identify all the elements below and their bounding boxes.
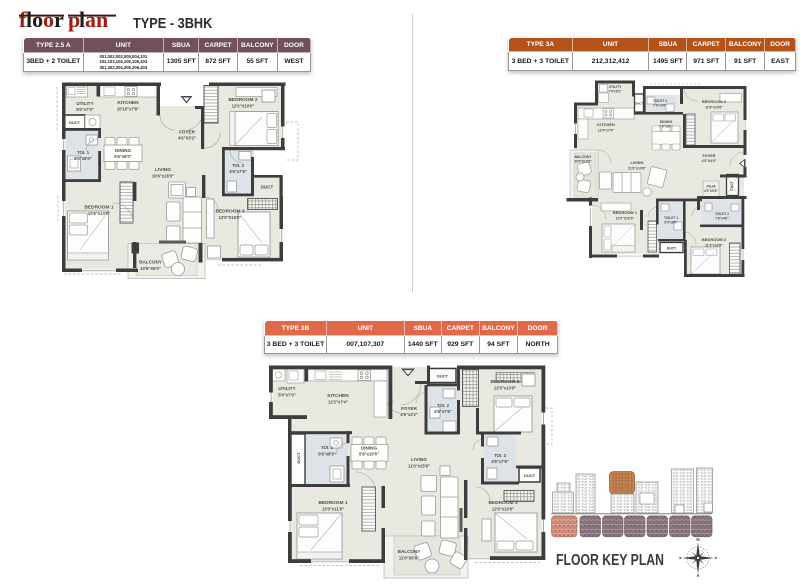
svg-text:UTILITY: UTILITY [278,386,295,391]
svg-text:12'2"x7'4": 12'2"x7'4" [328,400,348,405]
svg-text:DINING: DINING [361,446,378,451]
svg-text:DUCT: DUCT [667,247,677,251]
svg-text:11'6"x10'6": 11'6"x10'6" [705,106,723,110]
svg-text:4'6"X3'2": 4'6"X3'2" [178,136,196,141]
svg-text:12'0"X10'0": 12'0"X10'0" [219,215,242,220]
svg-text:DINING: DINING [660,120,673,124]
svg-text:12'0"x10'0": 12'0"x10'0" [492,507,514,512]
svg-text:LIVING: LIVING [630,160,643,165]
svg-text:BEDROOM 2: BEDROOM 2 [490,379,519,385]
svg-text:10'10"x7'8": 10'10"x7'8" [117,107,139,112]
svg-text:DUCT: DUCT [524,473,536,478]
svg-text:TOI. 3: TOI. 3 [494,453,507,458]
svg-text:TOI. 2: TOI. 2 [232,163,245,168]
svg-text:BEDROOM 2: BEDROOM 2 [228,97,257,103]
svg-text:KITCHEN: KITCHEN [117,100,139,106]
svg-text:DUCT: DUCT [69,120,81,125]
svg-text:DUCT: DUCT [296,452,301,464]
svg-text:N: N [696,537,699,542]
svg-text:r: r [54,7,64,32]
svg-text:4'6"x7'6": 4'6"x7'6" [229,169,247,174]
svg-text:10'6"x13'0": 10'6"x13'0" [88,211,110,216]
svg-text:BEDROOM 1: BEDROOM 1 [613,210,638,215]
svg-text:DUCT: DUCT [730,180,734,190]
svg-text:5'0"x7'0": 5'0"x7'0" [278,393,296,398]
svg-text:13'0"x11'0": 13'0"x11'0" [322,507,344,512]
svg-text:7'6"x4'6": 7'6"x4'6" [653,104,667,108]
svg-text:11'0"X5'0": 11'0"X5'0" [399,556,419,561]
svg-text:TOI. 1: TOI. 1 [77,150,90,155]
svg-text:lo: lo [26,7,43,32]
svg-text:KITCHEN: KITCHEN [597,122,615,127]
svg-text:FLOOR KEY PLAN: FLOOR KEY PLAN [556,552,664,569]
svg-text:11'0"x15'6": 11'0"x15'6" [408,464,430,469]
svg-text:FOYER: FOYER [702,154,715,158]
svg-text:BEDROOM 3: BEDROOM 3 [488,500,517,506]
svg-text:LIVING: LIVING [411,457,427,463]
svg-text:5'8"x10'0": 5'8"x10'0" [359,452,379,457]
svg-text:BALCONY: BALCONY [575,155,593,159]
svg-text:LIVING: LIVING [155,167,171,173]
svg-text:BALCONY: BALCONY [139,260,162,265]
svg-text:11'2"x10'6": 11'2"x10'6" [705,244,723,248]
svg-text:5'0"x8'0": 5'0"x8'0" [74,156,92,161]
svg-text:BEDROOM 1: BEDROOM 1 [84,205,113,211]
svg-text:DINING: DINING [115,148,132,153]
svg-text:KITCHEN: KITCHEN [327,393,349,399]
svg-text:PUJA: PUJA [706,185,716,189]
svg-text:TOI. 2: TOI. 2 [437,403,450,408]
svg-text:12'0"x10'0": 12'0"x10'0" [494,386,516,391]
svg-text:UTILITY: UTILITY [76,101,93,106]
svg-text:FOYER: FOYER [401,406,418,411]
svg-text:10'6"x18'3": 10'6"x18'3" [152,174,174,179]
svg-text:5'6"x8'0": 5'6"x8'0" [318,452,336,457]
svg-text:20'0"X10'6": 20'0"X10'6" [574,160,592,164]
svg-text:5'0"x8'0": 5'0"x8'0" [664,221,678,225]
svg-text:5'0"x7'0": 5'0"x7'0" [76,107,94,112]
svg-text:BEDROOM 1: BEDROOM 1 [318,500,347,506]
svg-text:4'3"X5'8": 4'3"X5'8" [704,189,718,193]
svg-text:12'0"X10'0": 12'0"X10'0" [232,104,255,109]
svg-text:TOILET 1: TOILET 1 [664,216,678,220]
svg-text:4'6"x7'6": 4'6"x7'6" [434,409,452,414]
svg-text:UTILITY: UTILITY [609,85,623,89]
svg-text:12'0"X10'6": 12'0"X10'6" [616,217,635,221]
svg-text:BEDROOM 3: BEDROOM 3 [215,209,244,215]
svg-text:12'4"x7'6": 12'4"x7'6" [598,129,615,133]
svg-text:o: o [43,7,54,32]
svg-text:TOILET 3: TOILET 3 [653,99,667,103]
svg-text:DUCT: DUCT [635,102,643,106]
svg-text:4'0"X4'6": 4'0"X4'6" [702,159,717,163]
svg-text:DUCT: DUCT [261,185,274,190]
svg-text:7'4"x6'2": 7'4"x6'2" [608,90,622,94]
svg-text:TOILET 2: TOILET 2 [715,212,729,216]
svg-text:7'0"x8'0": 7'0"x8'0" [659,125,673,129]
svg-text:21'6"x10'6": 21'6"x10'6" [628,167,646,171]
svg-text:an: an [85,7,108,32]
svg-text:4'6"x7'6": 4'6"x7'6" [491,459,509,464]
svg-text:FOYER: FOYER [179,130,196,135]
svg-text:7'6"x4'6": 7'6"x4'6" [715,217,729,221]
svg-text:10'6"X5'0": 10'6"X5'0" [140,266,160,271]
svg-text:BEDROOM 3: BEDROOM 3 [702,99,727,104]
svg-text:BALCONY: BALCONY [398,549,421,554]
svg-text:4'6"x3'2": 4'6"x3'2" [400,412,418,417]
svg-text:BEDROOM 2: BEDROOM 2 [702,237,727,242]
svg-text:TOI. 1: TOI. 1 [321,445,334,450]
svg-text:5'6"x8'0": 5'6"x8'0" [114,154,132,159]
svg-text:DUCT: DUCT [437,374,449,379]
